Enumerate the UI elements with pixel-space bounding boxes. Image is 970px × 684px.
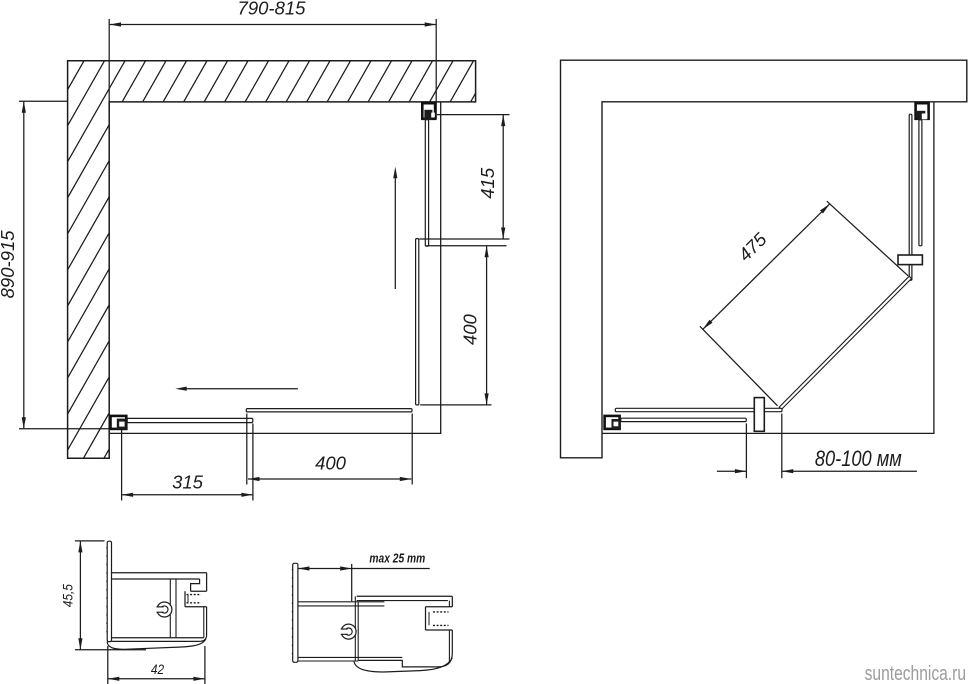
svg-text:400: 400	[460, 313, 481, 345]
svg-text:80-100 мм: 80-100 мм	[815, 448, 902, 472]
svg-text:max 25 mm: max 25 mm	[369, 553, 425, 566]
svg-text:suntechnica.ru: suntechnica.ru	[865, 662, 966, 684]
svg-text:315: 315	[172, 472, 204, 493]
svg-text:400: 400	[315, 453, 347, 474]
svg-text:42: 42	[151, 661, 164, 677]
svg-text:45,5: 45,5	[60, 583, 76, 607]
svg-text:790-815: 790-815	[238, 0, 307, 18]
svg-text:415: 415	[477, 167, 498, 199]
svg-text:890-915: 890-915	[0, 230, 18, 299]
